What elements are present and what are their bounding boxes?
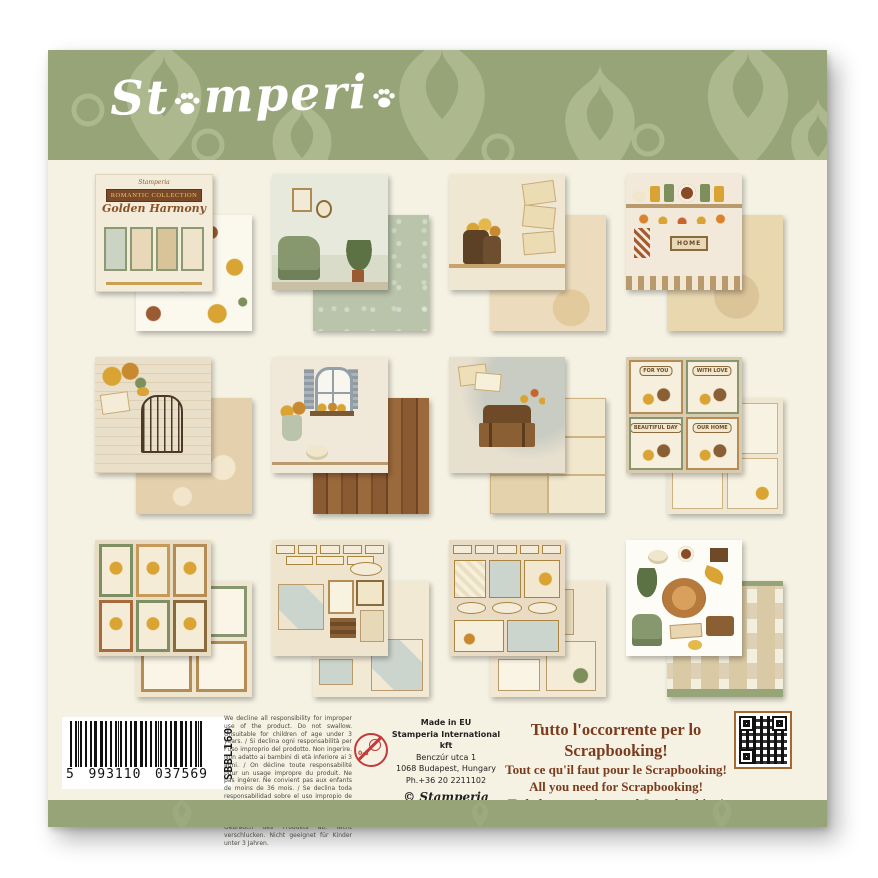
qr-code [734, 711, 792, 769]
frame-illustration [328, 580, 354, 614]
cover-brand-text: Stamperia [96, 179, 212, 186]
plant-illustration [344, 240, 374, 274]
ground-line-illustration [272, 462, 388, 465]
front-sheet-birdcage [95, 357, 211, 473]
yellow-bird-illustration [137, 387, 149, 396]
slogan-italian: Tutto l'occorrente per lo Scrapbooking! [504, 719, 728, 762]
journaling-box-illustration [507, 620, 559, 652]
damask-pattern [48, 800, 827, 827]
label-chip [298, 545, 317, 554]
front-sheet-living-room [272, 174, 388, 290]
tag-illustration [498, 659, 540, 691]
shelf-illustration [449, 264, 565, 268]
barcode-bars [70, 721, 202, 767]
paper-preview-9 [95, 540, 255, 723]
barcode-lead-digit: 5 [66, 767, 75, 782]
letter-illustration [522, 231, 556, 256]
tile-illustration [319, 659, 353, 685]
wall-frame-illustration [292, 188, 312, 212]
footer-band [48, 800, 827, 827]
manufacturer-name: Stamperia International kft [390, 729, 502, 752]
paper-preview-10 [272, 540, 432, 723]
slogan-french: Tout ce qu'il faut pour le Scrapbooking! [504, 762, 728, 779]
front-sheet-kitchen-shelf: HOME [626, 174, 742, 290]
label-chip-row [453, 545, 561, 554]
cover-preview-strip [104, 227, 204, 271]
qr-finder-pattern [739, 716, 754, 731]
label-chip [365, 545, 384, 554]
front-sheet-six-frames [95, 540, 211, 656]
card-art [694, 442, 732, 464]
label-chip [276, 545, 295, 554]
header-band: Stmperi [48, 50, 827, 160]
floor-illustration [272, 282, 388, 290]
paper-preview-2 [272, 174, 432, 357]
oval-label-illustration [492, 602, 521, 614]
paper-preview-8: FOR YOU WITH LOVE BEAUTIFUL DAY OUR HOME [626, 357, 786, 540]
oval-label-illustration [528, 602, 557, 614]
journaling-box-illustration [524, 560, 560, 598]
scrapbook-pack-back-cover: Stmperi Stamperia ROMANTIC COLLECTION Go… [48, 50, 827, 827]
card-label: FOR YOU [639, 366, 672, 376]
made-in-line: Made in EU [390, 717, 502, 729]
framed-card-illustration [136, 544, 170, 597]
paper-preview-7 [449, 357, 609, 540]
cover-mini-2 [130, 227, 153, 271]
trunk-illustration [706, 616, 734, 636]
suitcase-illustration [479, 423, 535, 447]
manufacturer-city: 1068 Budapest, Hungary [390, 763, 502, 775]
label-chip [542, 545, 561, 554]
label-chip [497, 545, 516, 554]
cover-collection-banner: ROMANTIC COLLECTION [106, 189, 202, 202]
autumn-leaf-illustration [702, 565, 726, 585]
label-chip-row [276, 545, 384, 554]
manufacturer-street: Benczúr utca 1 [390, 752, 502, 764]
oval-label-illustration [350, 562, 382, 576]
jar-illustration [714, 186, 724, 202]
label-chip [520, 545, 539, 554]
barcode-digits: 5 993110 037569 [62, 767, 212, 782]
jar-illustration [700, 184, 710, 202]
manufacturer-phone: Ph.+36 20 2211102 [390, 775, 502, 787]
home-sign: HOME [670, 236, 708, 251]
paper-illustration [474, 372, 501, 392]
windowsill-illustration [310, 411, 354, 416]
tile-illustration [360, 610, 384, 642]
journaling-box-illustration [489, 560, 521, 598]
framed-card-illustration [99, 600, 133, 653]
cover-mini-1 [104, 227, 127, 271]
card-for-you: FOR YOU [629, 360, 683, 414]
frame-illustration [356, 580, 384, 606]
cover-mini-3 [156, 227, 179, 271]
slogan-english: All you need for Scrapbooking! [504, 779, 728, 796]
letter-illustration [100, 391, 131, 415]
barcode-group-1: 993110 [88, 767, 141, 782]
plant-pot-illustration [352, 270, 364, 282]
paper-preview-5 [95, 357, 255, 540]
suitcase-lid-illustration [483, 405, 531, 425]
paper-preview-6 [272, 357, 432, 540]
age-warning-icon: 0-3 [354, 733, 388, 767]
card-label: OUR HOME [693, 423, 732, 433]
manufacturer-info: Made in EU Stamperia International kft B… [390, 717, 502, 806]
card-label: WITH LOVE [693, 366, 732, 376]
front-sheet-four-cards: FOR YOU WITH LOVE BEAUTIFUL DAY OUR HOME [626, 357, 742, 473]
front-sheet-suitcase [449, 357, 565, 473]
framed-card-illustration [173, 600, 207, 653]
label-chip [316, 556, 343, 565]
label-chip [343, 545, 362, 554]
postcard-illustration [490, 475, 548, 514]
paw-print-icon [171, 87, 202, 118]
framed-card-illustration [136, 600, 170, 653]
postcard-illustration [548, 475, 606, 514]
label-chip [286, 556, 313, 565]
logo-text-st: St [109, 70, 170, 127]
diamond-tile-illustration [278, 584, 324, 630]
barcode-group-2: 037569 [155, 767, 208, 782]
paper-preview-3 [449, 174, 609, 357]
books-stack-illustration [330, 618, 356, 638]
front-sheet-tags-labels [449, 540, 565, 656]
towel-illustration [634, 228, 650, 258]
letter-illustration [522, 204, 556, 229]
open-book-illustration [670, 623, 703, 639]
paper-preview-12 [626, 540, 786, 723]
gourd-illustration [688, 640, 702, 650]
card-art [637, 442, 675, 464]
armchair-illustration [278, 236, 320, 280]
front-sheet-cover: Stamperia ROMANTIC COLLECTION Golden Har… [95, 174, 213, 292]
qr-finder-pattern [772, 716, 787, 731]
journaling-box-illustration [454, 560, 486, 598]
stamperia-logo: Stmperi [109, 64, 399, 127]
paper-previews-grid: Stamperia ROMANTIC COLLECTION Golden Har… [95, 174, 786, 723]
logo-text-mperi: mperi [203, 65, 370, 124]
front-sheet-quote-labels [272, 540, 388, 656]
front-sheet-die-cuts [626, 540, 742, 656]
checkered-border-illustration [626, 276, 742, 290]
marketing-slogans: Tutto l'occorrente per lo Scrapbooking! … [504, 719, 728, 813]
armchair-illustration [632, 614, 662, 646]
oval-label-illustration [457, 602, 486, 614]
paper-preview-11 [449, 540, 609, 723]
card-art [637, 386, 675, 408]
footer-info-row: 5 993110 037569 SBBL160 We decline all r… [48, 705, 827, 800]
oval-labels-row [457, 602, 557, 614]
leaf-garland-illustration [636, 214, 732, 224]
label-chip [453, 545, 472, 554]
vase-illustration [282, 415, 302, 441]
card-beautiful-day: BEAUTIFUL DAY [629, 417, 683, 471]
cover-title-script: Golden Harmony [96, 202, 212, 215]
shelf-items-illustration [632, 180, 736, 202]
boot-illustration [483, 236, 501, 264]
front-sheet-window [272, 357, 388, 473]
legal-disclaimer-text: We decline all responsibility for improp… [224, 715, 352, 848]
butterflies-illustration [519, 387, 545, 407]
framed-card-illustration [99, 544, 133, 597]
cover-mini-4 [181, 227, 204, 271]
card-label: BEAUTIFUL DAY [630, 423, 682, 433]
paw-print-icon [371, 84, 398, 111]
oval-frame-illustration [316, 200, 332, 218]
shelf-illustration [626, 204, 742, 208]
paper-preview-4: HOME [626, 174, 786, 357]
label-chip [320, 545, 339, 554]
card-art [694, 386, 732, 408]
birdcage-illustration [141, 395, 183, 453]
journaling-box-illustration [454, 620, 504, 652]
qr-finder-pattern [739, 749, 754, 764]
photo-background: Stmperi Stamperia ROMANTIC COLLECTION Go… [0, 0, 878, 878]
qr-code-pattern [739, 716, 787, 764]
front-sheet-boots-letters [449, 174, 565, 290]
barcode: 5 993110 037569 SBBL160 [62, 717, 232, 789]
alarm-clock-illustration [678, 546, 694, 562]
framed-card-illustration [173, 544, 207, 597]
pumpkin-illustration [632, 191, 646, 202]
card-with-love: WITH LOVE [686, 360, 740, 414]
plant-illustration [634, 568, 660, 602]
jar-illustration [650, 186, 660, 202]
letters-stack-illustration [523, 182, 557, 260]
pumpkin-illustration [648, 550, 668, 564]
wood-slice-illustration [662, 578, 706, 618]
paper-preview-1: Stamperia ROMANTIC COLLECTION Golden Har… [95, 174, 255, 357]
letter-illustration [522, 180, 557, 206]
label-chip [475, 545, 494, 554]
alarm-clock-illustration [678, 184, 696, 202]
cover-gold-rule [106, 282, 202, 285]
pumpkin-illustration [306, 445, 328, 460]
jar-illustration [664, 184, 674, 202]
wooden-box-illustration [710, 548, 728, 562]
card-our-home: OUR HOME [686, 417, 740, 471]
